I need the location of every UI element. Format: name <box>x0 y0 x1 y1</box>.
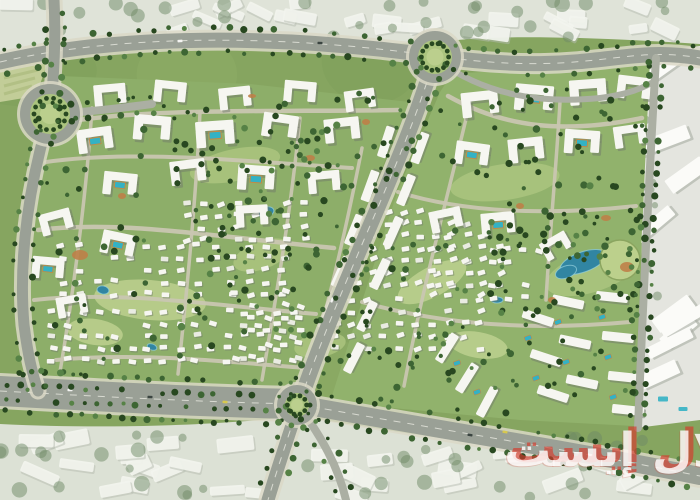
avenue-tree <box>171 418 175 422</box>
tree <box>79 372 83 376</box>
tree <box>640 123 644 127</box>
tree <box>262 196 266 200</box>
roundabout-tree <box>424 65 429 70</box>
tree <box>377 356 381 360</box>
villa-group <box>347 310 356 316</box>
tree <box>193 292 200 299</box>
villa-group <box>230 290 239 296</box>
avenue-tree <box>237 380 243 386</box>
avenue-tree <box>117 98 121 102</box>
villa-group <box>281 316 290 322</box>
avenue-tree <box>238 406 242 410</box>
avenue-tree <box>68 384 74 390</box>
avenue-tree <box>269 448 274 453</box>
roundabout-island-center <box>291 399 303 411</box>
avenue-tree <box>651 228 656 233</box>
avenue-tree <box>495 48 500 53</box>
villa <box>111 255 119 260</box>
avenue-tree <box>79 412 84 417</box>
avenue-tree <box>30 306 35 311</box>
avenue-tree <box>641 193 645 197</box>
tree <box>315 166 322 173</box>
tree <box>573 233 579 239</box>
roundabout-tree <box>62 105 67 110</box>
avenue-tree <box>69 401 74 406</box>
avenue-tree <box>648 314 653 319</box>
tree <box>82 167 88 173</box>
apartment-building <box>102 178 112 195</box>
faded-tree <box>134 476 150 492</box>
avenue-tree <box>469 419 474 424</box>
tree <box>303 232 308 237</box>
roundabout-tree <box>64 112 69 117</box>
tree <box>626 296 630 300</box>
avenue-tree <box>340 313 346 319</box>
villa-group <box>128 309 137 315</box>
tree <box>579 208 586 215</box>
faded-tree <box>579 488 591 500</box>
tree <box>257 140 262 145</box>
villa <box>299 212 307 217</box>
tree <box>218 231 225 238</box>
avenue-tree <box>631 357 637 363</box>
roundabout-tree <box>58 124 63 129</box>
faded-tree <box>123 2 137 16</box>
tree <box>580 181 587 188</box>
tree <box>373 188 378 193</box>
tree <box>540 231 547 238</box>
tree <box>117 224 124 231</box>
avenue-tree <box>653 170 660 177</box>
avenue-tree <box>416 134 422 140</box>
tree <box>239 247 243 251</box>
avenue-tree <box>168 50 172 54</box>
tree <box>294 144 299 149</box>
faded-tree <box>359 487 371 499</box>
tree <box>333 122 340 129</box>
roundabout-tree <box>441 44 446 49</box>
avenue-tree <box>71 373 75 377</box>
tree <box>633 124 638 129</box>
tree <box>455 287 459 291</box>
avenue-tree <box>107 373 114 380</box>
avenue-tree <box>536 431 540 435</box>
villa-group <box>197 226 206 232</box>
villa <box>144 358 152 363</box>
tree <box>386 167 393 174</box>
avenue-tree <box>414 69 420 75</box>
avenue-tree <box>43 383 48 388</box>
tree <box>192 113 196 117</box>
avenue-tree <box>668 481 675 488</box>
avenue-tree <box>634 282 640 288</box>
avenue-tree <box>592 439 598 445</box>
tree <box>480 359 486 365</box>
tree <box>266 211 272 217</box>
tree <box>545 383 551 389</box>
avenue-tree <box>196 51 201 56</box>
villa <box>177 347 185 352</box>
avenue-tree <box>31 382 36 387</box>
tree <box>198 161 204 167</box>
avenue-tree <box>11 259 15 263</box>
tree <box>62 166 69 173</box>
tree <box>566 277 572 283</box>
tree <box>416 331 421 336</box>
villa <box>433 259 441 264</box>
avenue-tree <box>11 307 16 312</box>
tree <box>629 317 635 323</box>
roundabout-tree <box>436 41 441 46</box>
tree <box>584 252 589 257</box>
avenue-tree <box>94 54 100 60</box>
villa-group <box>47 333 56 340</box>
villa <box>261 292 269 297</box>
avenue-tree <box>95 386 99 390</box>
avenue-tree <box>409 435 415 441</box>
avenue-tree <box>79 58 85 64</box>
tree <box>628 208 634 214</box>
villa <box>428 322 436 327</box>
villa <box>278 280 286 286</box>
avenue-tree <box>645 40 651 46</box>
tree <box>570 287 575 292</box>
tree <box>390 399 394 403</box>
avenue-tree <box>525 73 529 77</box>
avenue-tree <box>312 443 317 448</box>
avenue-tree <box>181 49 188 56</box>
avenue-tree <box>641 148 647 154</box>
tree <box>279 164 284 169</box>
faded-tree <box>382 455 391 464</box>
villa-group <box>519 247 528 253</box>
roundabout <box>406 28 464 86</box>
tree <box>244 168 249 173</box>
roundabout-tree <box>298 393 303 398</box>
avenue-tree <box>489 447 495 453</box>
avenue-tree <box>85 115 92 122</box>
villa <box>254 323 262 328</box>
tree <box>199 151 205 157</box>
avenue-tree <box>386 154 390 158</box>
villa <box>246 269 254 275</box>
villa <box>466 271 474 276</box>
tree <box>514 383 519 388</box>
avenue-tree <box>676 456 681 461</box>
avenue-tree <box>166 25 171 30</box>
villa-group <box>262 244 271 251</box>
avenue-tree <box>370 246 374 250</box>
avenue-tree <box>332 31 336 35</box>
tree <box>370 202 377 209</box>
tree <box>286 149 291 154</box>
avenue-tree <box>366 428 372 434</box>
villa-group <box>299 212 308 218</box>
avenue-tree <box>634 312 640 318</box>
tree <box>458 122 462 126</box>
avenue-tree <box>321 371 325 375</box>
villa-group <box>162 292 171 298</box>
roundabout-tree <box>58 99 63 104</box>
avenue-tree <box>294 376 298 380</box>
avenue-tree <box>250 407 255 412</box>
avenue-tree <box>652 248 657 253</box>
swimming-pool <box>250 175 262 183</box>
avenue-tree <box>629 389 635 395</box>
faded-tree <box>388 24 397 33</box>
tree <box>272 218 280 226</box>
avenue-tree <box>146 377 152 383</box>
villa-group <box>395 296 404 303</box>
avenue-tree <box>325 419 331 425</box>
tree <box>507 350 514 357</box>
faded-tree <box>53 430 65 442</box>
tree <box>254 304 259 309</box>
avenue-tree <box>466 46 471 51</box>
avenue-tree <box>656 150 660 154</box>
avenue-tree <box>278 381 282 385</box>
faded-tree <box>471 0 482 11</box>
tree <box>177 353 183 359</box>
apartment-building <box>94 92 103 108</box>
avenue-tree <box>39 89 44 94</box>
faded-tree <box>375 477 388 490</box>
tree <box>245 247 251 253</box>
villa <box>277 268 285 273</box>
avenue-tree <box>258 480 263 485</box>
masterplan-viewport: تلال إيست <box>0 0 700 500</box>
apartment-building <box>237 172 247 190</box>
tree <box>516 226 523 233</box>
faded-tree <box>131 442 146 457</box>
avenue-tree <box>56 120 60 124</box>
tree <box>363 266 369 272</box>
avenue-tree <box>184 404 189 409</box>
tree <box>336 163 340 167</box>
villa-group <box>160 334 169 340</box>
villa-group <box>79 333 88 340</box>
tree <box>497 101 502 106</box>
villa <box>273 321 281 326</box>
tree <box>185 110 189 114</box>
roundabout-tree <box>436 68 441 73</box>
avenue-tree <box>38 368 44 374</box>
tree <box>408 361 414 367</box>
tree <box>503 132 508 137</box>
villa <box>128 309 136 314</box>
avenue-tree <box>451 67 456 72</box>
tree <box>543 88 548 93</box>
tree <box>552 381 556 385</box>
avenue-tree <box>263 421 269 427</box>
tree <box>314 148 320 154</box>
avenue-tree <box>305 428 309 432</box>
tree <box>565 87 569 91</box>
avenue-tree <box>643 425 648 430</box>
tree <box>562 212 567 217</box>
tree <box>438 108 443 113</box>
avenue-tree <box>659 83 664 88</box>
tree <box>298 138 304 144</box>
villa-group <box>428 322 437 328</box>
avenue-tree <box>635 258 639 262</box>
avenue-tree <box>184 418 188 422</box>
avenue-tree <box>275 419 282 426</box>
tree <box>256 231 261 236</box>
avenue-tree <box>160 391 165 396</box>
avenue-tree <box>16 209 21 214</box>
pool <box>679 407 688 411</box>
tree <box>563 219 569 225</box>
avenue-tree <box>615 469 622 476</box>
avenue-tree <box>171 389 178 396</box>
avenue-tree <box>294 441 300 447</box>
avenue-tree <box>653 183 658 188</box>
tree <box>601 242 608 249</box>
tree <box>150 334 157 341</box>
avenue-tree <box>343 249 349 255</box>
vehicle <box>147 396 152 399</box>
avenue-tree <box>298 362 305 369</box>
tree <box>474 169 480 175</box>
avenue-tree <box>53 412 59 418</box>
avenue-tree <box>358 208 365 215</box>
villa <box>415 257 423 262</box>
tree <box>448 321 454 327</box>
tree <box>491 249 497 255</box>
avenue-tree <box>512 50 517 55</box>
tree <box>177 304 184 311</box>
villa <box>489 259 497 264</box>
avenue-tree <box>101 115 107 121</box>
faded-tree <box>460 26 474 40</box>
avenue-tree <box>618 444 624 450</box>
villa <box>224 345 232 350</box>
masterplan-aerial-rendering <box>0 0 700 500</box>
tree <box>241 125 248 132</box>
tree <box>598 348 604 354</box>
avenue-tree <box>12 292 16 296</box>
avenue-tree <box>2 407 7 412</box>
villa-group <box>95 333 104 340</box>
avenue-tree <box>227 24 234 31</box>
avenue-tree <box>646 72 653 79</box>
avenue-tree <box>316 52 322 58</box>
avenue-tree <box>249 392 256 399</box>
tree <box>507 201 512 206</box>
avenue-tree <box>504 450 510 456</box>
tree <box>540 295 544 299</box>
roundabout-tree <box>292 412 297 417</box>
tree <box>290 164 295 169</box>
tree <box>363 319 369 325</box>
villa-group <box>489 259 498 266</box>
villa-group <box>144 290 153 297</box>
avenue-tree <box>335 450 342 457</box>
tree <box>532 157 538 163</box>
tree <box>611 284 618 291</box>
tree <box>523 306 528 311</box>
tree <box>470 366 474 370</box>
tree <box>627 246 633 252</box>
avenue-tree <box>650 239 655 244</box>
villa-group <box>196 257 205 263</box>
tree <box>308 161 312 165</box>
tree <box>629 264 635 270</box>
tree <box>543 247 550 254</box>
tree <box>393 384 400 391</box>
tree <box>416 308 421 313</box>
avenue-tree <box>107 401 112 406</box>
tree <box>230 227 235 232</box>
avenue-tree <box>58 74 65 81</box>
avenue-tree <box>408 38 414 44</box>
avenue-tree <box>353 285 360 292</box>
tree <box>603 253 608 258</box>
avenue-tree <box>35 212 40 217</box>
tree <box>545 264 550 269</box>
tree <box>533 125 541 133</box>
avenue-tree <box>634 448 641 455</box>
avenue-tree <box>465 445 471 451</box>
faded-tree <box>12 482 27 497</box>
tree <box>237 298 241 302</box>
avenue-tree <box>688 65 693 70</box>
avenue-tree <box>32 42 37 47</box>
villa-group <box>177 281 186 288</box>
avenue-tree <box>151 28 156 33</box>
avenue-tree <box>427 409 433 415</box>
villa <box>235 201 243 206</box>
villa <box>226 308 234 313</box>
avenue-tree <box>94 401 99 406</box>
tree <box>415 355 419 359</box>
avenue-tree <box>532 454 537 459</box>
tree <box>142 238 146 242</box>
tree <box>290 141 294 145</box>
avenue-tree <box>38 180 44 186</box>
villa-group <box>460 299 469 305</box>
avenue-tree <box>223 406 229 412</box>
avenue-tree <box>290 455 297 462</box>
avenue-tree <box>644 392 648 396</box>
avenue-tree <box>289 380 293 384</box>
tree <box>595 215 599 219</box>
avenue-tree <box>377 233 383 239</box>
avenue-tree <box>638 224 645 231</box>
tree <box>388 307 392 311</box>
tree <box>74 236 79 241</box>
avenue-tree <box>377 36 382 41</box>
tree <box>181 141 188 148</box>
villa <box>235 237 243 242</box>
avenue-tree <box>481 420 487 426</box>
tree <box>626 251 632 257</box>
tree <box>401 276 406 281</box>
villa <box>162 292 170 297</box>
roundabout-tree <box>51 127 56 132</box>
villa-group <box>94 279 103 285</box>
apartment-building <box>160 124 170 140</box>
avenue-tree <box>20 372 26 378</box>
avenue-tree <box>263 408 269 414</box>
faded-tree <box>449 453 462 466</box>
tree <box>314 136 320 142</box>
tree <box>243 260 247 264</box>
tree <box>439 153 445 159</box>
tree <box>82 328 87 333</box>
villa <box>240 323 248 328</box>
